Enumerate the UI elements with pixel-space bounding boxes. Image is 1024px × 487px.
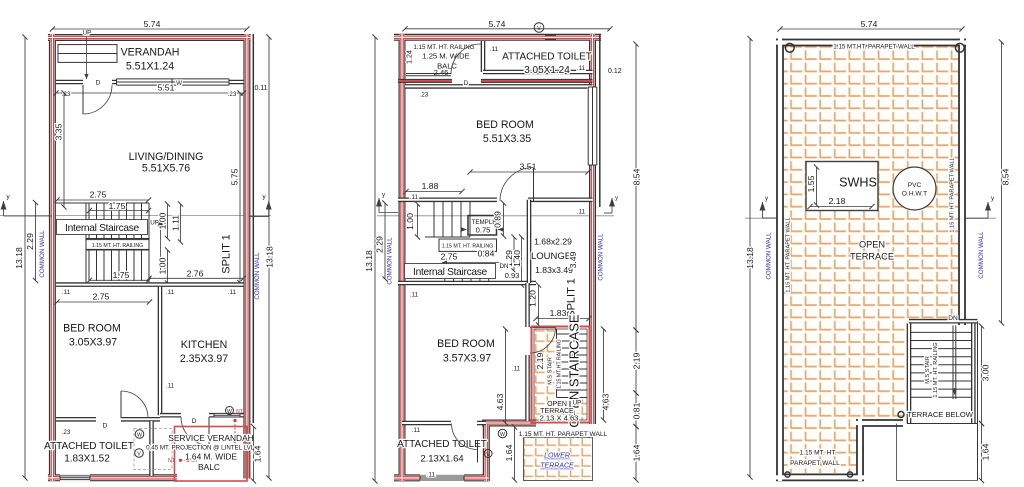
svg-text:.11: .11 <box>490 46 499 53</box>
svg-text:TERRACE: TERRACE <box>540 463 574 470</box>
svg-text:1.24: 1.24 <box>407 50 414 64</box>
svg-text:.23: .23 <box>228 91 237 98</box>
svg-text:2.75: 2.75 <box>93 292 110 302</box>
svg-text:5.51: 5.51 <box>158 83 175 93</box>
svg-text:UP: UP <box>573 400 582 407</box>
svg-text:DN: DN <box>500 263 509 270</box>
svg-text:.11: .11 <box>577 209 586 216</box>
svg-text:2.35X3.97: 2.35X3.97 <box>180 353 228 365</box>
svg-text:PVC: PVC <box>908 182 922 189</box>
svg-text:D: D <box>464 80 469 87</box>
svg-text:1.15 MT. HT. PARAPET WALL: 1.15 MT. HT. PARAPET WALL <box>519 431 608 438</box>
svg-text:3.49: 3.49 <box>568 251 578 268</box>
svg-text:0.11: 0.11 <box>254 85 267 92</box>
svg-text:3.05X1.24: 3.05X1.24 <box>524 65 570 76</box>
svg-text:D: D <box>96 80 101 87</box>
svg-text:0.84: 0.84 <box>478 248 495 258</box>
svg-text:.11: .11 <box>62 289 71 296</box>
svg-text:1.15 MT. HT. RAILING: 1.15 MT. HT. RAILING <box>413 44 474 51</box>
svg-text:1.15 MT HT RAILING: 1.15 MT HT RAILING <box>557 339 563 388</box>
svg-text:1.75: 1.75 <box>113 270 130 280</box>
svg-text:1.15 MT. HT. RAILING: 1.15 MT. HT. RAILING <box>933 342 939 397</box>
svg-text:1.64: 1.64 <box>981 443 991 460</box>
svg-text:TERRACE: TERRACE <box>850 252 894 262</box>
svg-text:D: D <box>192 418 197 425</box>
svg-text:2.13 X 4.63: 2.13 X 4.63 <box>540 414 579 423</box>
svg-text:BED ROOM: BED ROOM <box>437 338 495 350</box>
svg-text:O.H.W.T: O.H.W.T <box>902 191 927 198</box>
svg-text:3.57X3.97: 3.57X3.97 <box>443 353 491 365</box>
svg-text:.11: .11 <box>166 289 175 296</box>
svg-text:3.00: 3.00 <box>981 364 991 381</box>
svg-text:1.55: 1.55 <box>806 175 816 192</box>
svg-text:.11: .11 <box>412 427 421 434</box>
svg-text:V: V <box>486 452 490 458</box>
svg-text:SPLIT 1: SPLIT 1 <box>566 278 578 318</box>
svg-text:8.54: 8.54 <box>631 168 641 185</box>
svg-text:1.88: 1.88 <box>422 181 439 191</box>
svg-text:.11: .11 <box>577 65 586 72</box>
svg-text:NT.: NT. <box>236 409 244 415</box>
svg-text:COMMON WALL: COMMON WALL <box>598 233 605 281</box>
svg-text:.23: .23 <box>420 92 429 99</box>
svg-text:1.15 MT. HT. PARAPET WALL: 1.15 MT. HT. PARAPET WALL <box>950 157 956 232</box>
svg-text:0.93: 0.93 <box>505 271 520 280</box>
svg-text:3.05X3.97: 3.05X3.97 <box>69 337 117 349</box>
svg-text:1.64: 1.64 <box>504 444 514 461</box>
svg-text:.11: .11 <box>427 471 436 478</box>
svg-text:2.75: 2.75 <box>441 251 458 261</box>
svg-text:1.15 MT. HT. PARAPET WALL: 1.15 MT. HT. PARAPET WALL <box>786 217 792 292</box>
svg-text:TERRACE BELOW: TERRACE BELOW <box>907 410 974 419</box>
svg-text:13.18: 13.18 <box>14 247 24 269</box>
svg-text:1.15 MT.HT. PARAPET WALL: 1.15 MT.HT. PARAPET WALL <box>833 44 915 51</box>
svg-text:COMMON WALL: COMMON WALL <box>39 230 46 278</box>
svg-text:ATTACHED TOILET: ATTACHED TOILET <box>44 441 134 452</box>
svg-text:13.18: 13.18 <box>364 250 374 272</box>
svg-text:5.51X5.76: 5.51X5.76 <box>142 163 190 175</box>
svg-text:M.S STAIR: M.S STAIR <box>925 356 931 384</box>
svg-text:COMMON WALL: COMMON WALL <box>766 232 773 280</box>
svg-text:W: W <box>176 80 182 87</box>
svg-text:UP: UP <box>83 30 92 37</box>
svg-text:BED ROOM: BED ROOM <box>63 323 121 335</box>
svg-text:4.63: 4.63 <box>495 393 505 410</box>
svg-text:W: W <box>500 432 505 438</box>
svg-text:2.75: 2.75 <box>90 190 107 200</box>
svg-text:1.15 MT. HT. RAILING: 1.15 MT. HT. RAILING <box>92 243 143 249</box>
svg-text:0.12: 0.12 <box>608 68 622 75</box>
svg-text:2.76: 2.76 <box>187 268 204 278</box>
svg-text:COMMON WALL: COMMON WALL <box>978 231 985 279</box>
svg-text:5.74: 5.74 <box>144 19 161 29</box>
svg-text:COMMON WALL: COMMON WALL <box>254 252 261 300</box>
svg-text:1.75: 1.75 <box>109 201 126 211</box>
svg-text:1.64: 1.64 <box>253 445 263 462</box>
svg-text:2.29: 2.29 <box>25 233 35 250</box>
svg-text:OPEN: OPEN <box>547 401 567 408</box>
svg-text:1.40: 1.40 <box>512 250 522 267</box>
svg-text:.11: .11 <box>512 366 521 373</box>
svg-text:1.64: 1.64 <box>631 444 641 461</box>
svg-text:PARAPET WALL: PARAPET WALL <box>790 460 840 467</box>
svg-text:1.00: 1.00 <box>157 257 167 274</box>
svg-text:1.83: 1.83 <box>550 308 567 318</box>
svg-text:13.18: 13.18 <box>745 247 755 269</box>
svg-text:1.00: 1.00 <box>405 213 415 230</box>
svg-text:W: W <box>227 409 232 415</box>
svg-text:KITCHEN: KITCHEN <box>181 339 228 351</box>
svg-text:1.64 M. WIDE: 1.64 M. WIDE <box>185 451 238 461</box>
svg-text:V: V <box>137 452 141 458</box>
svg-text:0.75: 0.75 <box>476 225 491 234</box>
svg-text:W: W <box>137 433 142 439</box>
svg-text:VERANDAH: VERANDAH <box>121 47 180 59</box>
svg-text:ATTACHED TOILET: ATTACHED TOILET <box>397 439 487 450</box>
svg-text:.11: .11 <box>410 194 419 201</box>
svg-text:5.74: 5.74 <box>489 19 506 29</box>
svg-text:1.25 M. WIDE: 1.25 M. WIDE <box>422 52 469 61</box>
svg-text:2.19: 2.19 <box>631 352 641 369</box>
svg-text:BED ROOM: BED ROOM <box>476 119 534 131</box>
svg-text:OPEN: OPEN <box>859 240 885 250</box>
svg-text:5.74: 5.74 <box>861 19 878 29</box>
svg-text:1.15 MT. HT.: 1.15 MT. HT. <box>799 450 836 457</box>
svg-text:Internal Staircase: Internal Staircase <box>65 223 140 234</box>
svg-text:SERVICE VERANDAH: SERVICE VERANDAH <box>168 433 253 443</box>
svg-text:M.S STAIR: M.S STAIR <box>548 357 554 385</box>
svg-text:2.29: 2.29 <box>374 236 384 253</box>
svg-text:.23: .23 <box>62 91 71 98</box>
svg-text:DN: DN <box>948 315 958 322</box>
svg-text:1.00: 1.00 <box>157 212 167 229</box>
svg-text:1.11: 1.11 <box>171 215 181 231</box>
svg-text:5.75: 5.75 <box>229 168 239 185</box>
svg-text:2.13X1.64: 2.13X1.64 <box>420 454 463 465</box>
svg-text:3.35: 3.35 <box>54 123 64 140</box>
svg-text:13.18: 13.18 <box>265 246 275 268</box>
svg-text:ATTACHED TOILET: ATTACHED TOILET <box>502 52 592 63</box>
svg-text:LOUNGE: LOUNGE <box>531 251 571 262</box>
svg-text:.11: .11 <box>166 383 175 390</box>
svg-text:.11: .11 <box>410 292 419 299</box>
svg-text:V: V <box>537 26 541 32</box>
svg-text:1.83X1.52: 1.83X1.52 <box>64 454 110 465</box>
svg-text:Internal Staircase: Internal Staircase <box>413 267 488 278</box>
svg-text:1.68x2.29: 1.68x2.29 <box>534 237 572 247</box>
svg-text:8.54: 8.54 <box>1000 168 1010 185</box>
svg-text:SPLIT 1: SPLIT 1 <box>221 234 233 274</box>
svg-text:COMMON WALL: COMMON WALL <box>387 237 394 285</box>
svg-text:D: D <box>103 423 108 430</box>
svg-text:.11: .11 <box>228 289 237 296</box>
svg-text:2.18: 2.18 <box>829 196 846 206</box>
svg-text:2.19: 2.19 <box>535 352 545 369</box>
svg-text:5.51X3.35: 5.51X3.35 <box>483 133 531 145</box>
svg-text:5.51X1.24: 5.51X1.24 <box>126 61 174 73</box>
svg-text:LIVING/DINING: LIVING/DINING <box>129 151 204 163</box>
svg-text:0.81: 0.81 <box>631 402 641 419</box>
svg-text:BALC: BALC <box>198 462 220 472</box>
svg-text:4.63: 4.63 <box>601 393 611 410</box>
svg-text:LOWER: LOWER <box>544 453 570 460</box>
svg-text:SWHS: SWHS <box>839 176 877 190</box>
svg-text:0.89: 0.89 <box>493 211 503 228</box>
svg-text:3.51: 3.51 <box>520 162 537 172</box>
svg-text:.23: .23 <box>62 429 71 436</box>
